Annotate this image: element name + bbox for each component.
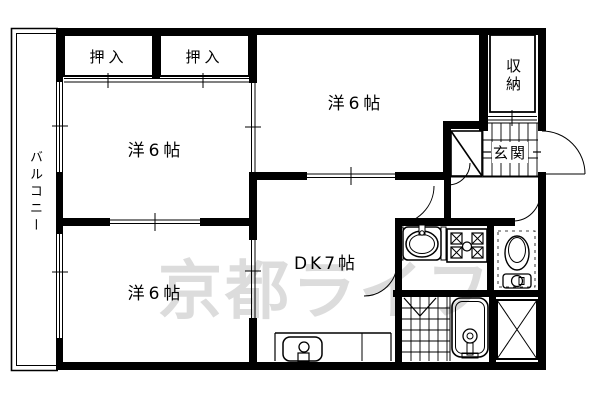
dining-kitchen-label: DK7帖 [266, 249, 386, 274]
bathtub-icon [452, 298, 488, 358]
room-lower-left-label: 洋6帖 [100, 279, 212, 304]
closet-label-1: 押入 [64, 46, 153, 67]
pipe-space-x [497, 300, 537, 359]
kitchen-sink [398, 225, 446, 260]
room-upper-right-label: 洋6帖 [300, 89, 412, 114]
interior-walls [58, 28, 546, 370]
toilet-icon [498, 231, 535, 288]
outer-walls [56, 28, 546, 370]
counter-sink [275, 333, 391, 362]
shoe-cabinet [451, 131, 482, 176]
room-upper-left-label: 洋6帖 [100, 136, 212, 161]
entrance-label: 玄関 [492, 142, 528, 163]
closet-label-2: 押入 [160, 46, 249, 67]
storage-label: 収納 [503, 58, 524, 94]
balcony-label: バルコニー [25, 150, 44, 235]
gas-stove-icon [447, 229, 487, 262]
washroom-tile-floor [402, 297, 450, 361]
floorplan: 京都ライフ [0, 0, 600, 400]
